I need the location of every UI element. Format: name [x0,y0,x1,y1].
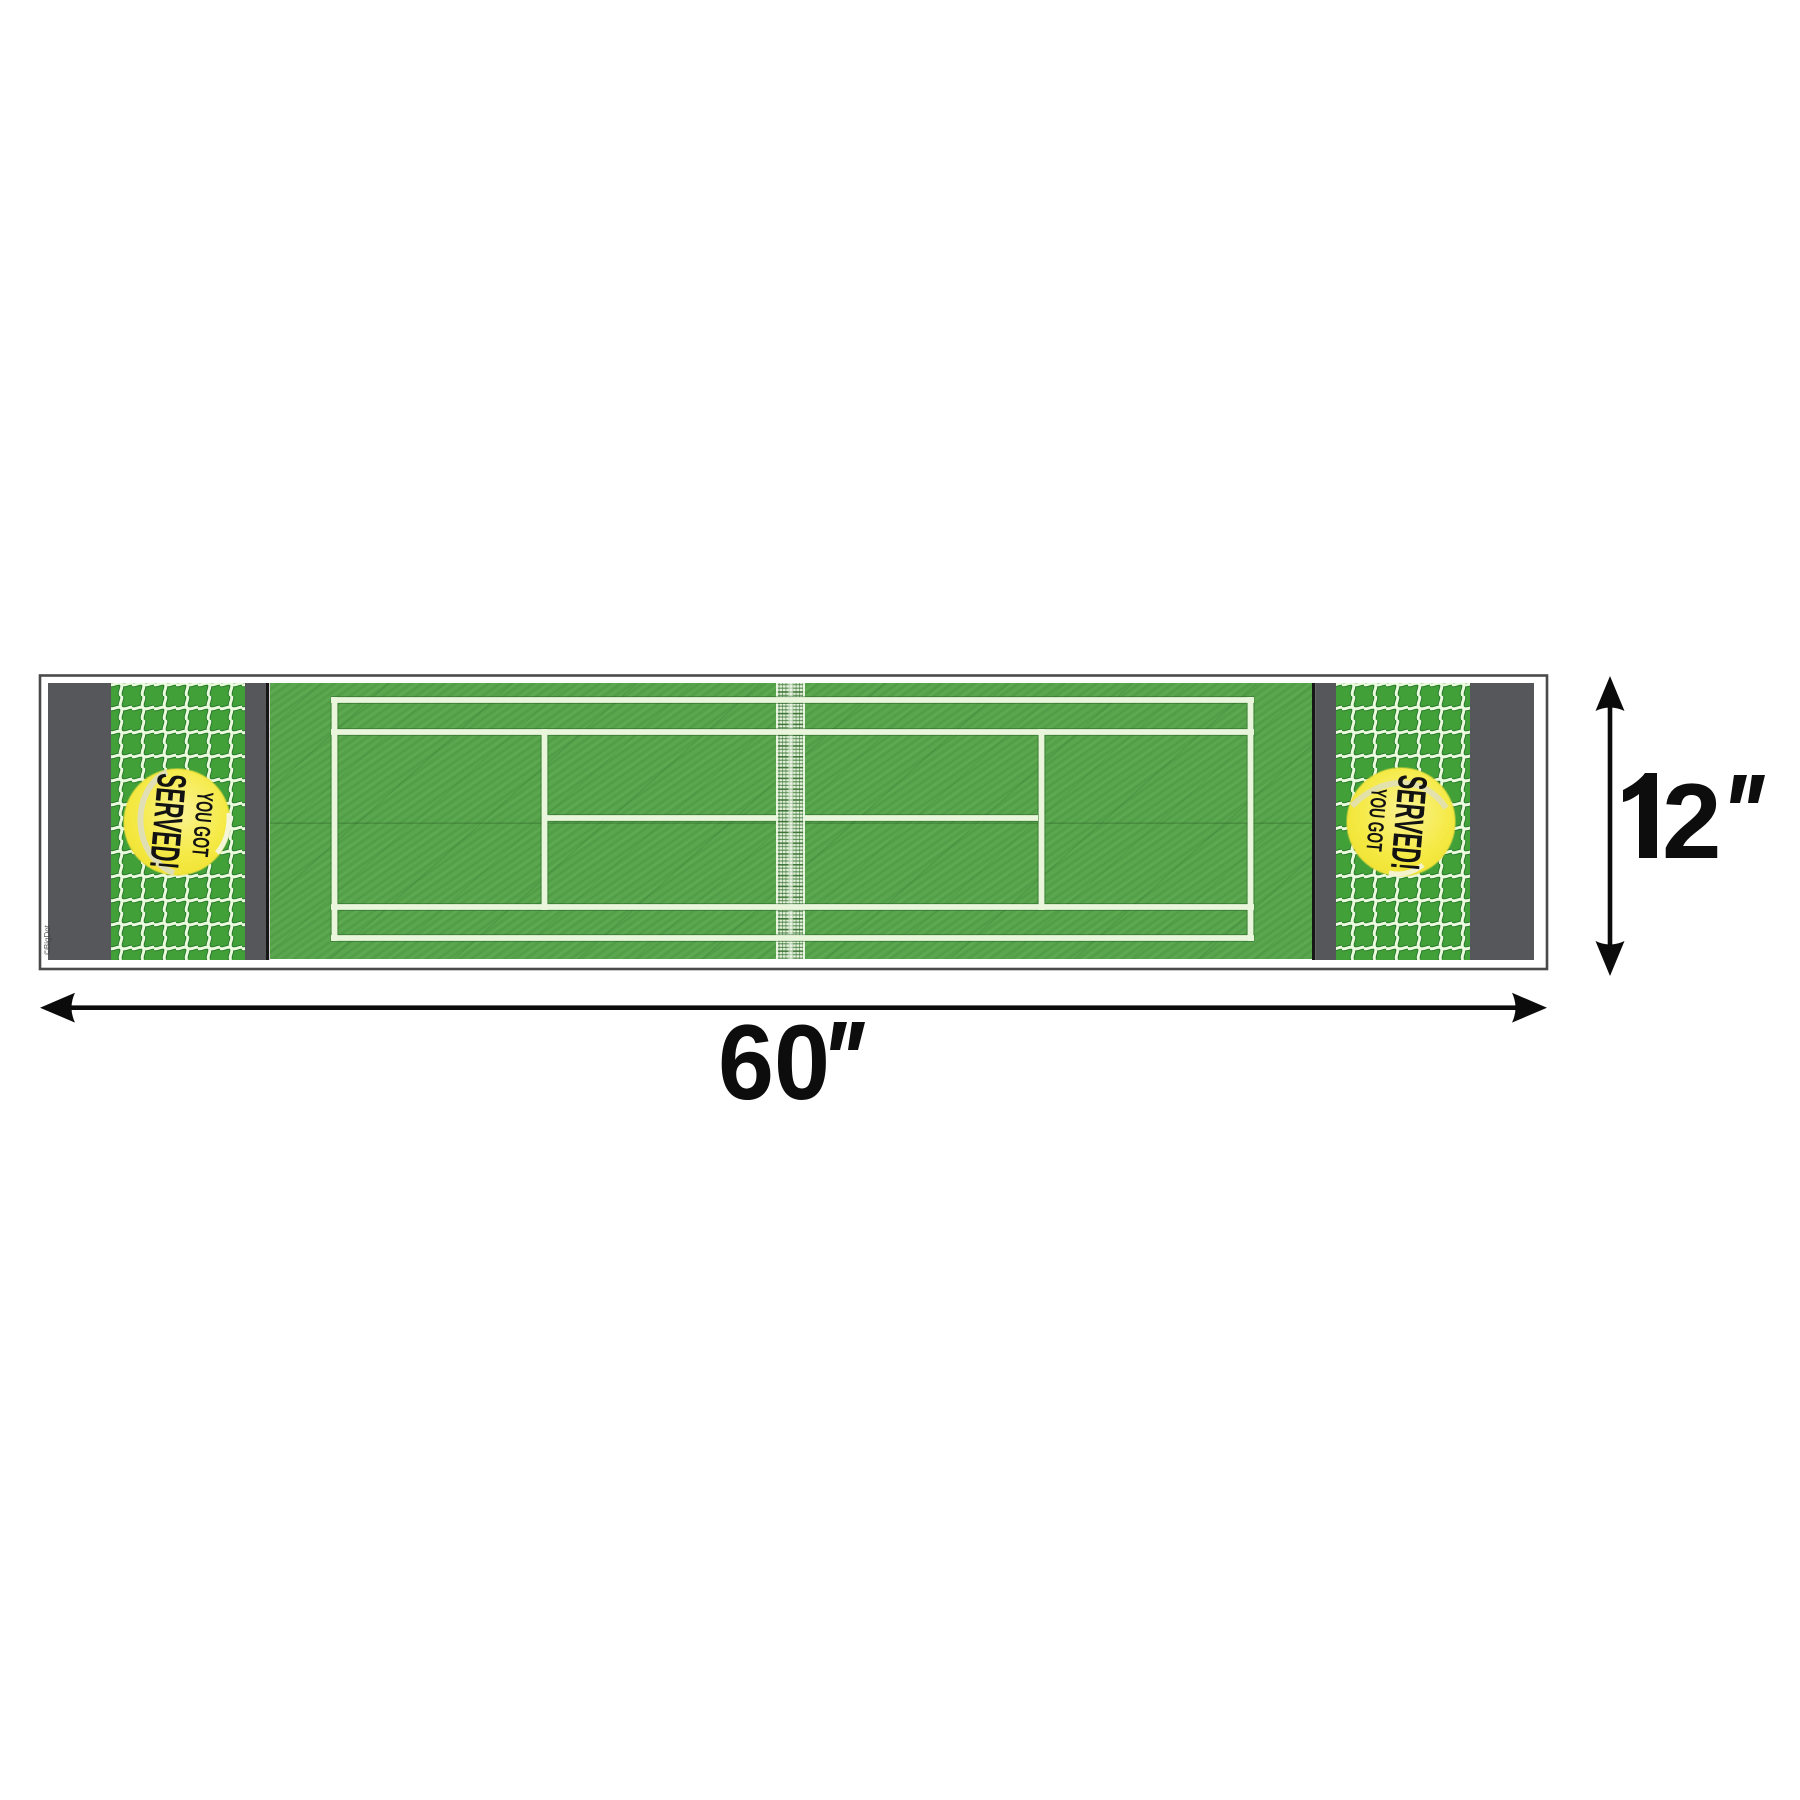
svg-text:60: 60 [718,1002,830,1122]
svg-text:SERVED!: SERVED! [1382,773,1436,872]
svg-text:SERVED!: SERVED! [141,772,195,871]
svg-text:©BigDot: ©BigDot [43,924,52,955]
svg-text:2: 2 [1662,761,1722,881]
